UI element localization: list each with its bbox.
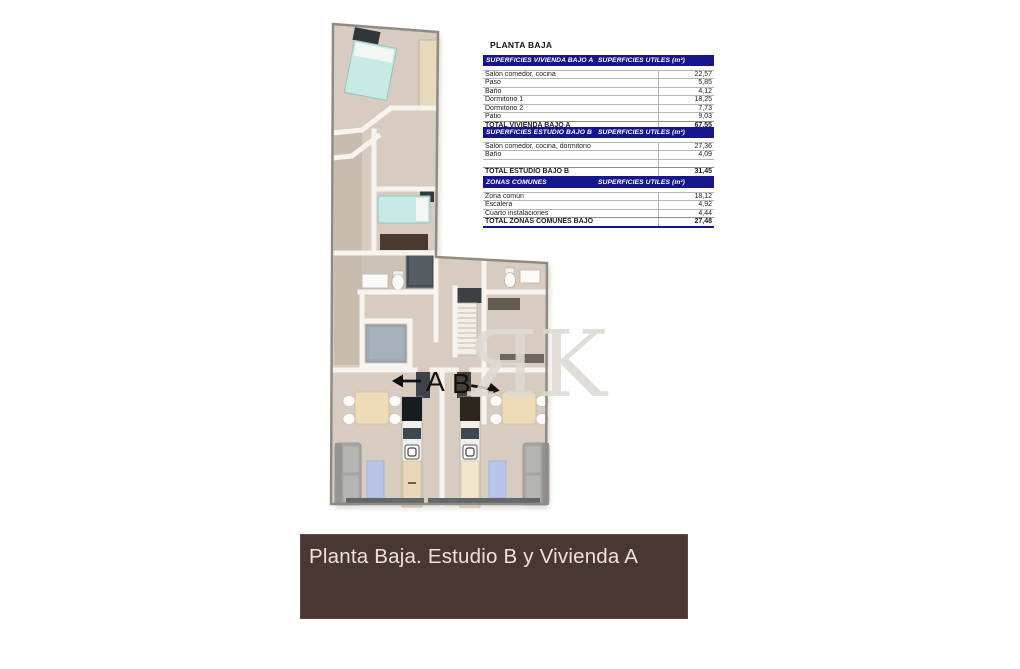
table-header-left: SUPERFICIES VIVIENDA BAJO A: [486, 57, 598, 64]
row-value: 4,92: [658, 201, 714, 209]
row-label: Paso: [483, 79, 658, 87]
rug-a: [367, 461, 384, 498]
table-row: Baño4,09: [483, 150, 714, 159]
wc-sink: [520, 270, 540, 283]
row-label: [483, 160, 658, 168]
row-value: 9,03: [658, 113, 714, 121]
row-label: Salón comedor, cocina: [483, 71, 658, 79]
sofa-a: [335, 443, 361, 505]
row-label: Dormitorio 1: [483, 96, 658, 104]
row-value: 5,85: [658, 79, 714, 87]
row-label: Salón comedor, cocina, dormitorio: [483, 143, 658, 151]
table-row: Paso5,85: [483, 78, 714, 87]
table-row: Escalera4,92: [483, 200, 714, 209]
total-value: 31,45: [658, 168, 714, 176]
table-header-left: ZONAS COMUNES: [486, 179, 598, 186]
total-label: TOTAL ESTUDIO BAJO B: [483, 168, 658, 176]
rug-b: [489, 461, 506, 498]
kitchen-island-a: [402, 397, 422, 507]
table-header-right: SUPERFICIES UTILES (m²): [598, 179, 711, 186]
zona-comun-floor: [334, 132, 362, 365]
table-row: Dormitorio 27,73: [483, 104, 714, 113]
table-zonas-comunes: ZONAS COMUNES SUPERFICIES UTILES (m²) Zo…: [483, 177, 714, 228]
bathroom-toilet: [392, 271, 404, 290]
row-value: 22,57: [658, 71, 714, 79]
page-title: PLANTA BAJA: [490, 40, 714, 50]
table-estudio-bajo-b: SUPERFICIES ESTUDIO BAJO B SUPERFICIES U…: [483, 127, 714, 178]
row-value: 18,12: [658, 193, 714, 201]
total-label: TOTAL ZONAS COMUNES BAJO: [483, 218, 658, 226]
table-total-row: TOTAL ZONAS COMUNES BAJO27,48: [483, 217, 714, 228]
row-value: 4,09: [658, 151, 714, 159]
row-value: 7,73: [658, 105, 714, 113]
caption-banner: Planta Baja. Estudio B y Vivienda A: [300, 534, 688, 619]
row-value: 4,44: [658, 210, 714, 218]
dormitorio-2-bed: [378, 191, 434, 223]
row-value: 27,36: [658, 143, 714, 151]
watermark-logo: ЯK: [464, 311, 609, 418]
row-label: Dormitorio 2: [483, 105, 658, 113]
patio: [366, 325, 406, 362]
sideboard-upper: [488, 298, 520, 310]
wc-toilet: [505, 268, 516, 288]
wardrobe-dormitorio-2: [380, 234, 428, 250]
table-row: Salón comedor, cocina, dormitorio27,36: [483, 142, 714, 151]
table-header-left: SUPERFICIES ESTUDIO BAJO B: [486, 129, 598, 136]
unit-a-label: A: [426, 366, 445, 397]
total-value: 27,48: [658, 218, 714, 226]
row-value: 18,25: [658, 96, 714, 104]
row-value: [658, 160, 714, 168]
table-vivienda-bajo-a: SUPERFICIES VIVIENDA BAJO A SUPERFICIES …: [483, 55, 714, 132]
row-label: Baño: [483, 151, 658, 159]
table-row: Baño4,12: [483, 87, 714, 96]
table-row: Zona común18,12: [483, 192, 714, 201]
table-header: ZONAS COMUNES SUPERFICIES UTILES (m²): [483, 177, 714, 188]
table-header-right: SUPERFICIES UTILES (m²): [598, 57, 711, 64]
row-label: Cuarto instalaciones: [483, 210, 658, 218]
table-row: [483, 159, 714, 168]
shower: [406, 252, 435, 288]
table-header: SUPERFICIES ESTUDIO BAJO B SUPERFICIES U…: [483, 127, 714, 138]
bathroom-sink: [362, 274, 388, 288]
table-header-right: SUPERFICIES UTILES (m²): [598, 129, 711, 136]
table-header: SUPERFICIES VIVIENDA BAJO A SUPERFICIES …: [483, 55, 714, 66]
caption-text: Planta Baja. Estudio B y Vivienda A: [309, 545, 687, 569]
table-row: Patio9,03: [483, 112, 714, 121]
table-row: Dormitorio 118,25: [483, 95, 714, 104]
row-label: Baño: [483, 88, 658, 96]
table-row: Salón comedor, cocina22,57: [483, 70, 714, 79]
row-label: Escalera: [483, 201, 658, 209]
table-row: Cuarto instalaciones4,44: [483, 209, 714, 218]
row-value: 4,12: [658, 88, 714, 96]
wardrobe-dormitorio-1: [419, 40, 437, 108]
surface-tables: PLANTA BAJA SUPERFICIES VIVIENDA BAJO A …: [483, 40, 714, 50]
row-label: Zona común: [483, 193, 658, 201]
row-label: Patio: [483, 113, 658, 121]
